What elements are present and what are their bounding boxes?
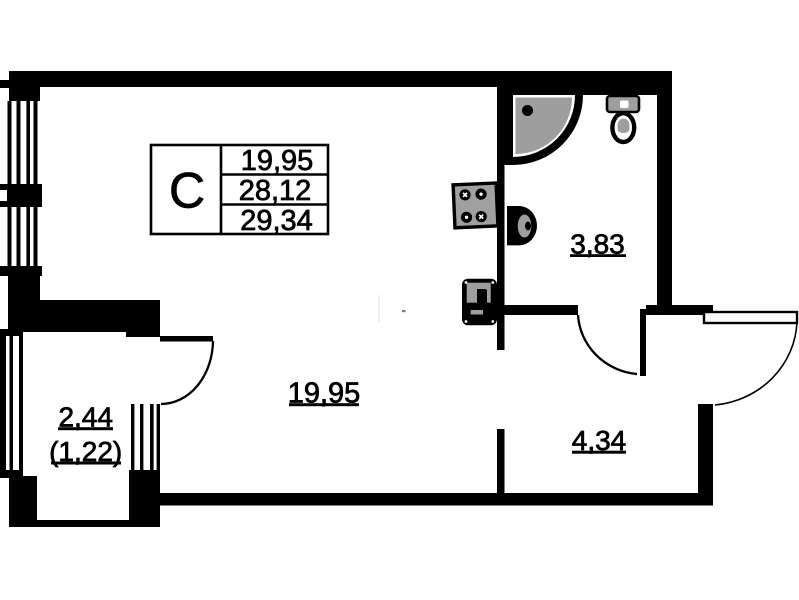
svg-text:19,95: 19,95 <box>241 145 314 177</box>
svg-text:29,34: 29,34 <box>240 205 313 237</box>
svg-text:C: C <box>169 163 205 219</box>
svg-text:28,12: 28,12 <box>239 175 312 207</box>
